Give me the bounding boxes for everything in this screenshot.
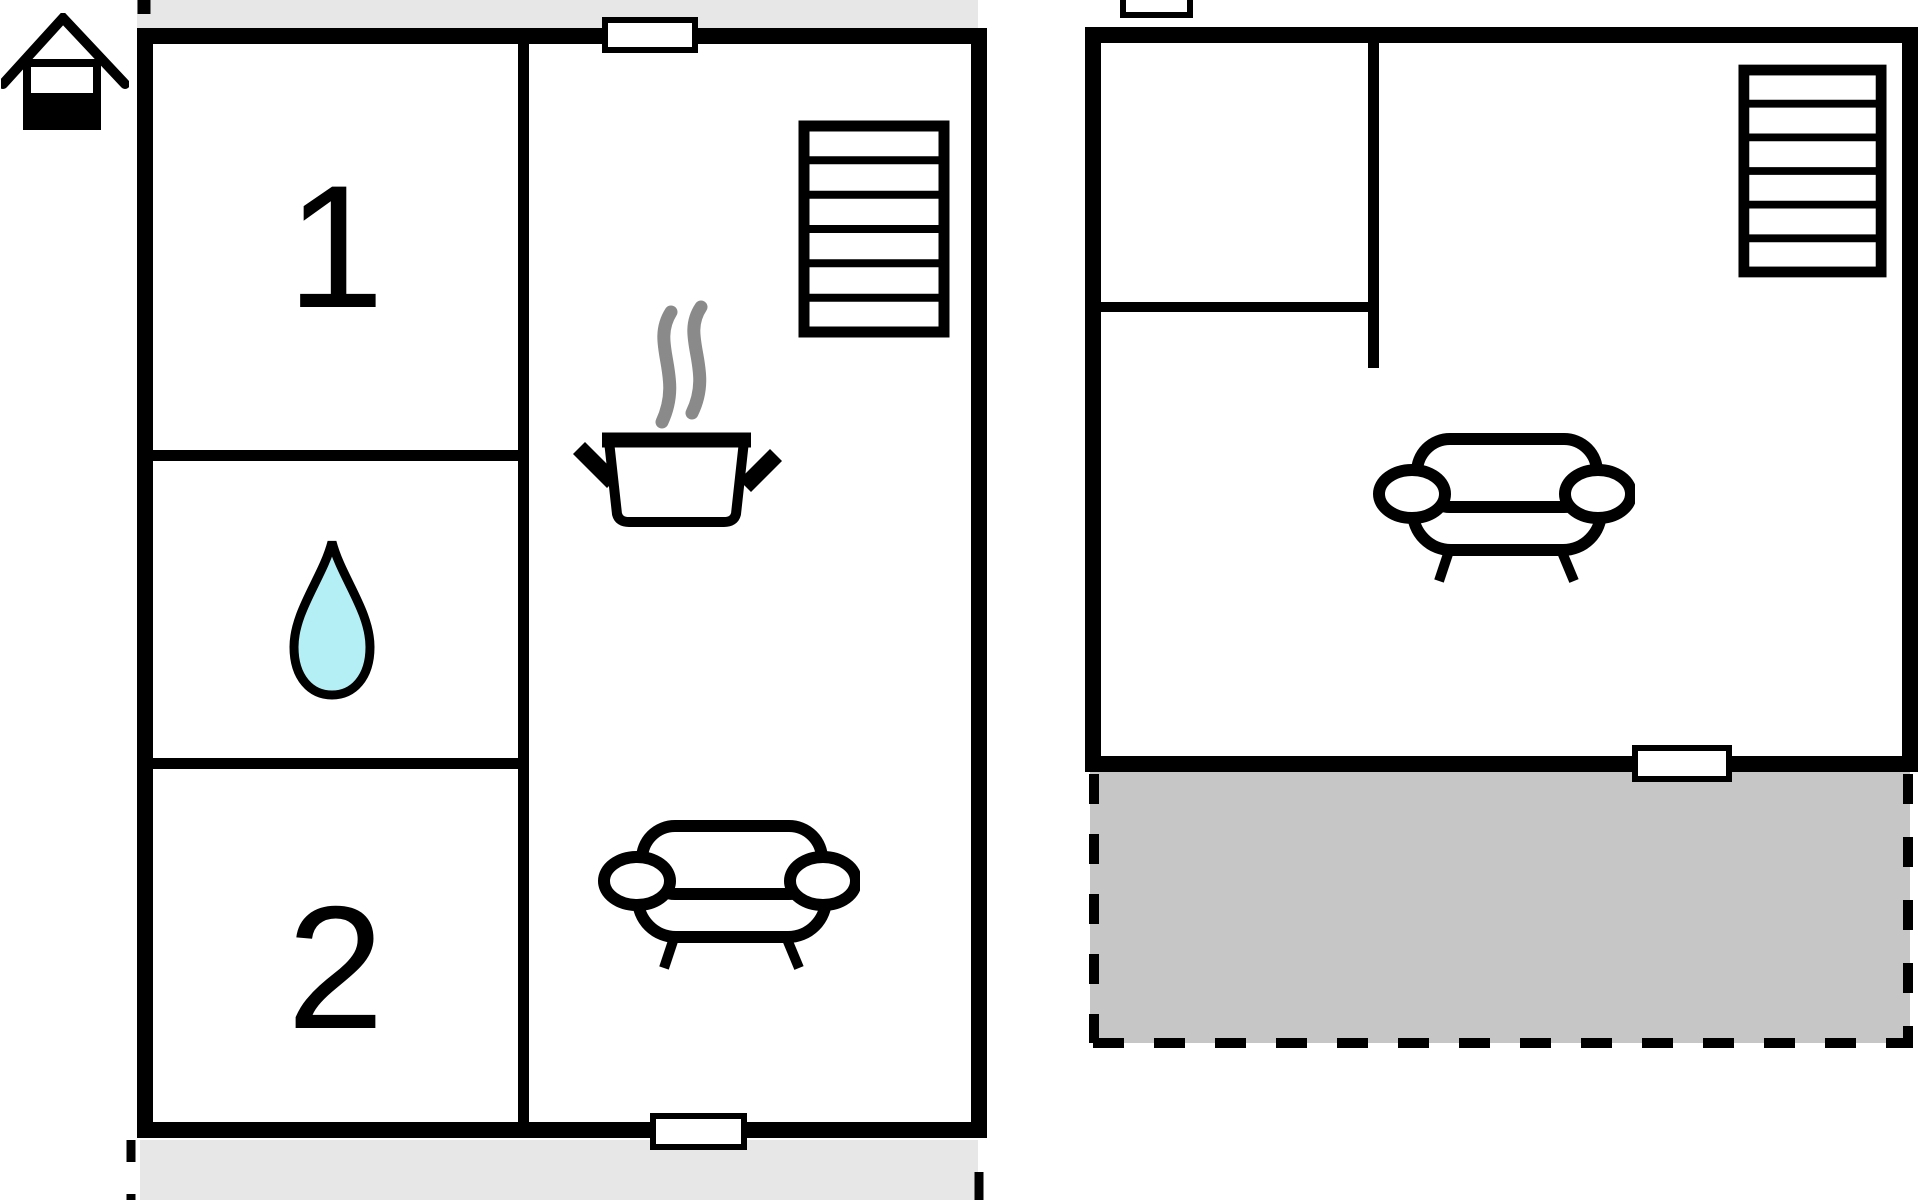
dashed-boundaries: [0, 0, 1920, 1200]
floorplan-canvas: 1 2: [0, 0, 1920, 1200]
